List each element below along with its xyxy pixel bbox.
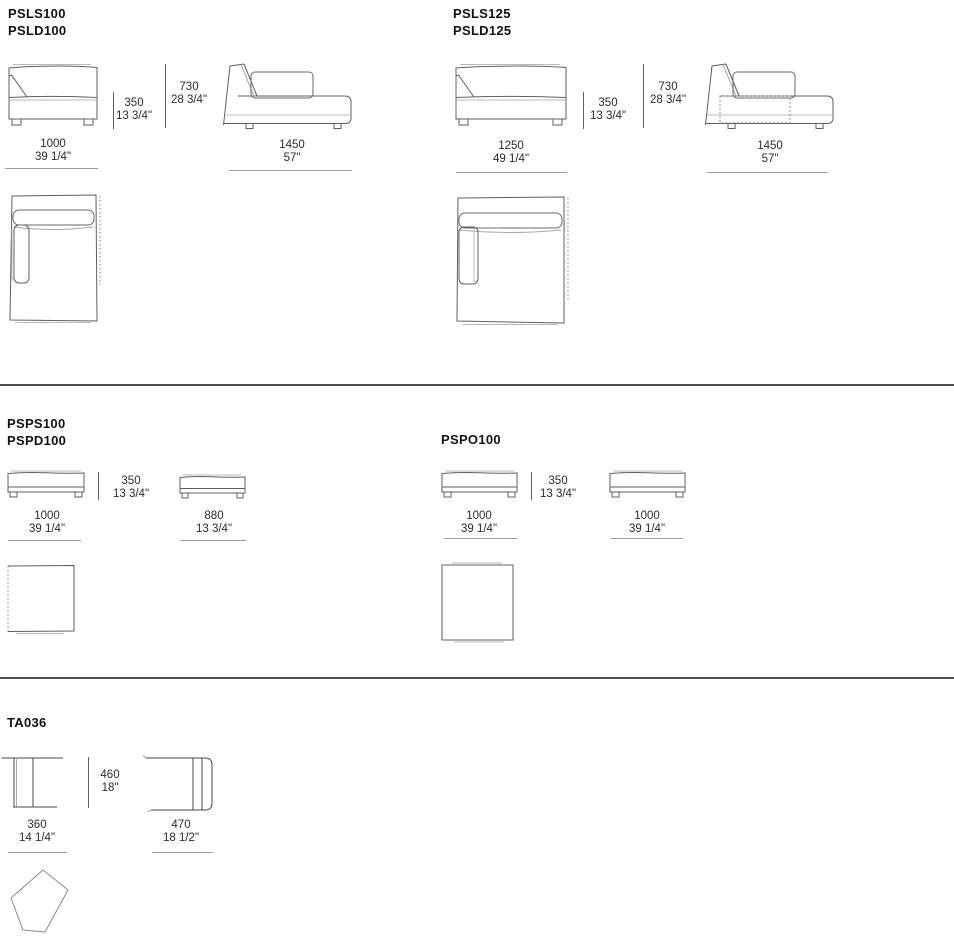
product-code: PSPO100 — [441, 432, 501, 447]
dimension-underline — [180, 540, 246, 541]
psps100-front-view-drawing — [7, 470, 85, 500]
ta036-side-view-drawing — [141, 753, 215, 813]
height-label: 350 13 3/4" — [96, 475, 166, 500]
width-label: 1000 39 1/4" — [444, 510, 514, 535]
product-code: PSPD100 — [7, 433, 66, 448]
dimension-sheet: PSLS100 PSLD100 PSLS125 PSLD125 350 13 3… — [0, 0, 954, 938]
width-label: 880 13 3/4" — [179, 510, 249, 535]
product-code: TA036 — [7, 715, 47, 730]
height-label: 460 18" — [75, 769, 145, 794]
ta036-front-view-drawing — [1, 754, 67, 812]
product-code: PSLS100 — [8, 6, 66, 21]
pspo100-front-view-drawing — [441, 470, 518, 500]
dimension-underline — [611, 538, 683, 539]
total-height-label: 730 28 3/4" — [154, 81, 224, 106]
psls100-top-view-drawing — [5, 193, 105, 327]
ta036-top-view-drawing — [6, 862, 74, 938]
psls125-side-view-drawing — [704, 59, 836, 131]
total-height-label: 730 28 3/4" — [633, 81, 703, 106]
product-code: PSLD100 — [8, 23, 66, 38]
depth-label: 1450 57" — [257, 139, 327, 164]
dimension-underline — [444, 538, 517, 539]
dimension-underline — [229, 170, 352, 171]
pspo100-top-view-drawing — [440, 561, 516, 643]
product-code: PSPS100 — [7, 416, 65, 431]
dimension-underline — [8, 540, 81, 541]
product-code: PSLS125 — [453, 6, 511, 21]
width-label: 1000 39 1/4" — [612, 510, 682, 535]
section-divider — [0, 384, 954, 386]
psps100-front-view2-drawing — [179, 474, 247, 500]
width-label: 1000 39 1/4" — [18, 138, 88, 163]
width-label: 1000 39 1/4" — [12, 510, 82, 535]
section-divider — [0, 677, 954, 679]
psls125-top-view-drawing — [451, 193, 573, 327]
dimension-underline — [8, 852, 67, 853]
width-label: 1250 49 1/4" — [476, 140, 546, 165]
dimension-underline — [5, 168, 98, 169]
psls125-front-view-drawing — [454, 62, 568, 128]
dimension-underline — [456, 172, 567, 173]
psls100-side-view-drawing — [222, 59, 354, 131]
dimension-underline — [152, 852, 213, 853]
psls100-front-view-drawing — [7, 62, 99, 128]
dimension-underline — [707, 172, 828, 173]
width-label: 360 14 1/4" — [2, 819, 72, 844]
depth-label: 1450 57" — [735, 140, 805, 165]
product-code: PSLD125 — [453, 23, 511, 38]
psps100-top-view-drawing — [6, 560, 76, 636]
pspo100-front-view2-drawing — [609, 470, 686, 500]
height-label: 350 13 3/4" — [523, 475, 593, 500]
width-label: 470 18 1/2" — [146, 819, 216, 844]
